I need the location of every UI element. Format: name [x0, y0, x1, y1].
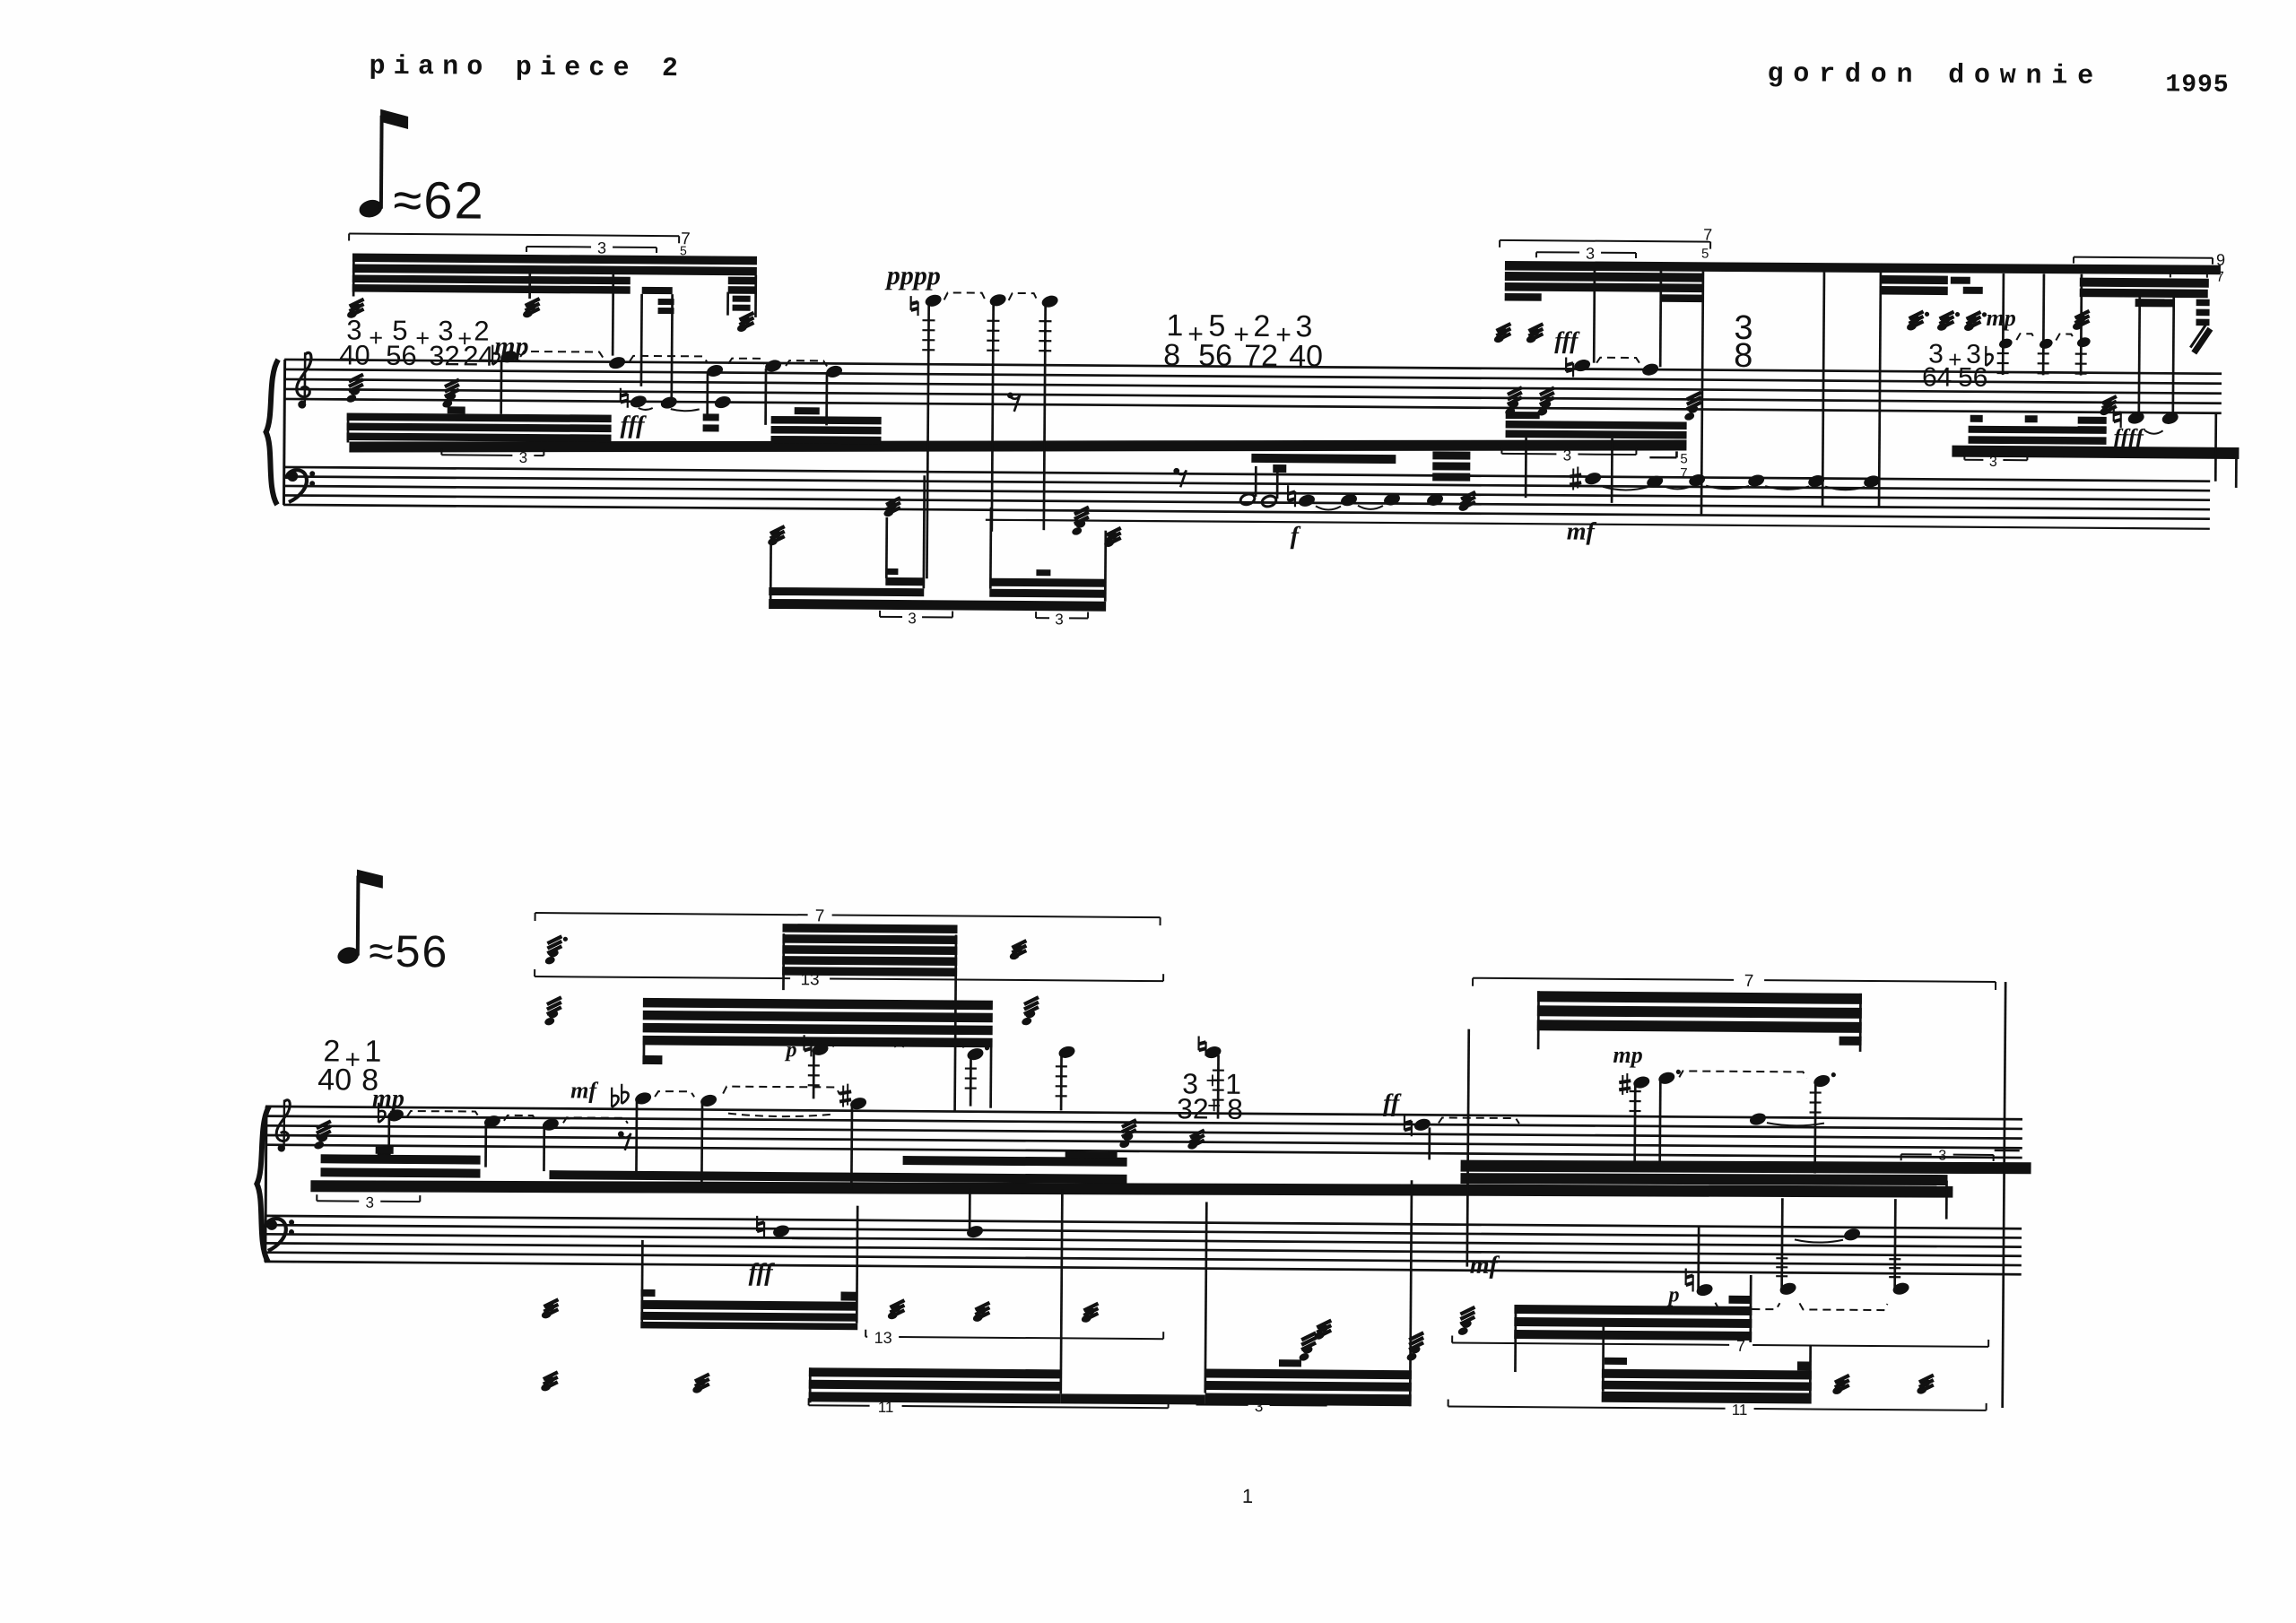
svg-text:piano piece 2: piano piece 2: [369, 52, 686, 85]
svg-text:3: 3: [1989, 455, 1997, 470]
svg-text:mf: mf: [1470, 1252, 1500, 1280]
svg-text:24: 24: [463, 340, 494, 371]
svg-text:mp: mp: [1613, 1042, 1642, 1068]
svg-text:fff: fff: [1554, 326, 1580, 353]
svg-text:3: 3: [1938, 1149, 1946, 1164]
svg-text:5: 5: [1701, 247, 1709, 262]
svg-text:40: 40: [1289, 339, 1323, 373]
svg-text:p: p: [784, 1038, 796, 1062]
svg-text:≈56: ≈56: [369, 926, 448, 977]
svg-text:32: 32: [1177, 1092, 1209, 1124]
svg-text:32: 32: [429, 340, 460, 371]
svg-text:8: 8: [1734, 337, 1752, 375]
svg-text:≈62: ≈62: [393, 171, 485, 230]
svg-text:56: 56: [386, 340, 417, 371]
svg-text:3: 3: [597, 239, 606, 257]
svg-text:11: 11: [1732, 1402, 1748, 1419]
svg-text:40: 40: [317, 1063, 352, 1097]
svg-text:8: 8: [1227, 1093, 1243, 1125]
svg-text:mp: mp: [372, 1085, 404, 1113]
svg-text:3: 3: [1055, 611, 1064, 628]
svg-text:7: 7: [1744, 972, 1754, 991]
svg-text:13: 13: [874, 1329, 892, 1347]
svg-text:1: 1: [1242, 1485, 1253, 1507]
svg-text:7: 7: [1680, 465, 1687, 481]
svg-text:1995: 1995: [2165, 71, 2229, 100]
svg-text:5: 5: [680, 243, 687, 257]
svg-text:7: 7: [2216, 270, 2224, 285]
svg-text:9: 9: [2216, 251, 2225, 269]
svg-text:8: 8: [1163, 338, 1180, 372]
svg-text:7: 7: [1736, 1337, 1745, 1355]
svg-text:ffff: ffff: [2113, 424, 2145, 450]
svg-text:40: 40: [339, 339, 370, 370]
svg-text:3: 3: [519, 449, 528, 466]
svg-text:3: 3: [1255, 1398, 1264, 1415]
svg-text:64: 64: [1922, 362, 1952, 392]
svg-text:fff: fff: [620, 412, 647, 439]
svg-text:11: 11: [878, 1399, 894, 1416]
svg-text:56: 56: [1958, 363, 1988, 393]
svg-text:gordon downie: gordon downie: [1767, 59, 2103, 92]
svg-text:pppp: pppp: [884, 261, 941, 291]
svg-text:+: +: [415, 325, 430, 352]
svg-text:5: 5: [1680, 451, 1687, 466]
svg-text:3: 3: [365, 1194, 374, 1211]
svg-text:mp: mp: [1986, 305, 2015, 331]
svg-text:fff: fff: [749, 1259, 776, 1287]
svg-text:p: p: [1666, 1283, 1679, 1306]
svg-text:7: 7: [815, 907, 825, 925]
svg-text:+: +: [369, 325, 383, 352]
svg-text:3: 3: [908, 610, 917, 627]
svg-text:3: 3: [1563, 447, 1572, 464]
svg-text:3: 3: [1586, 245, 1595, 263]
svg-text:72: 72: [1244, 339, 1278, 373]
svg-text:ff: ff: [1383, 1089, 1402, 1117]
svg-text:7: 7: [1703, 226, 1712, 244]
svg-text:mf: mf: [1567, 517, 1597, 545]
svg-text:56: 56: [1198, 338, 1232, 372]
svg-text:mf: mf: [570, 1077, 598, 1103]
svg-text:13: 13: [800, 970, 819, 989]
